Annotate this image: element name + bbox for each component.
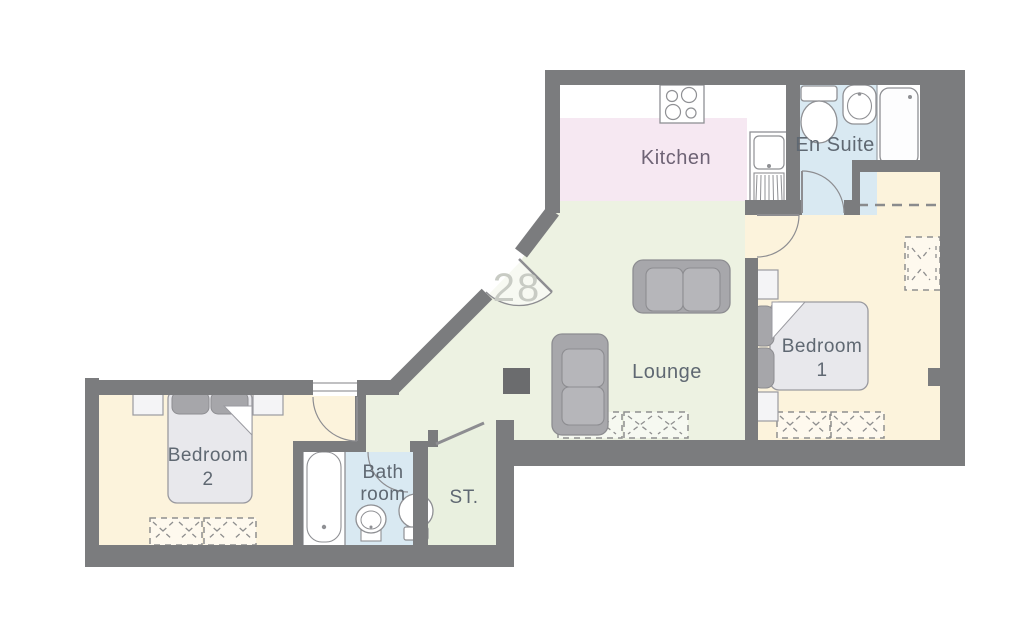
wall <box>545 70 560 213</box>
bathroom-label-line2: room <box>360 484 405 505</box>
ensuite-label: En Suite <box>795 134 875 156</box>
lounge-label: Lounge <box>632 361 702 383</box>
wall <box>496 420 514 567</box>
wardrobe-symbol <box>905 237 940 290</box>
wardrobe-symbol <box>204 518 256 545</box>
hob-icon <box>660 85 704 123</box>
wall <box>293 441 366 452</box>
wall <box>545 70 965 85</box>
wall <box>293 441 303 550</box>
wall <box>920 70 965 172</box>
bathtub-icon <box>303 447 345 547</box>
wall <box>852 160 940 172</box>
wall <box>852 160 860 210</box>
wall <box>940 165 965 465</box>
wall <box>928 368 942 386</box>
floor-plan-page: 28 Kitchen En Suite Lounge Bedroom 1 Bed… <box>0 0 1024 638</box>
bathroom-sink-icon <box>356 505 386 541</box>
sofa-icon <box>552 334 608 435</box>
ensuite-sink-icon <box>843 85 876 124</box>
shower-tray-icon <box>880 88 918 165</box>
wall <box>85 378 99 567</box>
wardrobe-symbol <box>150 518 202 545</box>
kitchen-label: Kitchen <box>641 147 711 169</box>
bathroom-label-line1: Bath <box>362 462 403 483</box>
floor-plan: 28 Kitchen En Suite Lounge Bedroom 1 Bed… <box>0 0 1024 638</box>
column <box>503 368 530 394</box>
wall <box>496 440 965 466</box>
wardrobe-symbol <box>777 412 830 438</box>
kitchen-sink-icon <box>750 132 788 204</box>
wall <box>413 441 428 550</box>
bedroom1-label-line1: Bedroom <box>782 336 863 357</box>
bedroom2-label-line1: Bedroom <box>168 445 249 466</box>
bedroom1-label-line2: 1 <box>816 360 827 381</box>
storage-label: ST. <box>450 487 479 508</box>
wardrobe-symbol <box>831 412 884 438</box>
wall <box>85 380 313 395</box>
wardrobe-symbol <box>624 412 688 438</box>
bedroom2-label-line2: 2 <box>202 469 213 490</box>
unit-number-label: 28 <box>493 266 542 310</box>
sofa-icon <box>633 260 730 313</box>
